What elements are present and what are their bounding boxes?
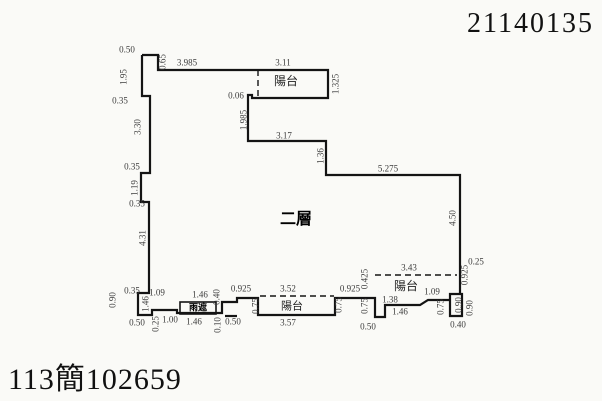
dimension-label: 0.50 [225,318,241,327]
floor-plan-page: 0.503.9853.110.060.353.175.2750.350.350.… [0,0,602,401]
dimension-label-vertical: 1.36 [317,148,326,164]
dimension-label-vertical: 1.325 [332,74,341,94]
wall-outline [142,55,462,316]
dimension-label-vertical: 4.31 [139,230,148,246]
dimension-label-vertical: 0.75 [335,297,344,313]
dimension-label: 1.38 [382,296,398,305]
dimension-label: 1.46 [392,308,408,317]
dimension-label-vertical: 1.46 [142,296,151,312]
dimension-label-vertical: 0.75 [361,298,370,314]
dimension-label-vertical: 1.95 [120,69,129,85]
document-number: 21140135 [467,8,594,40]
dimension-label: 3.985 [177,59,197,68]
dimension-label: 1.00 [162,316,178,325]
dimension-label: 1.46 [186,318,202,327]
dimension-label: 3.17 [276,132,292,141]
dimension-label: 1.09 [424,288,440,297]
dimension-label: 1.09 [149,289,165,298]
dimension-label: 1.46 [192,291,208,300]
canopy-label: 雨遮 [189,304,207,313]
dimension-label-vertical: 1.19 [131,180,140,196]
balcony-label: 陽台 [394,280,418,292]
dimension-label-vertical: 0.75 [252,298,261,314]
dimension-label: 0.40 [450,321,466,330]
dimension-label-vertical: 0.925 [461,265,470,285]
floor-plan-drawing [0,0,602,401]
dimension-label: 0.25 [468,258,484,267]
dimension-label-vertical: 4.50 [449,210,458,226]
dimension-label-vertical: 0.90 [455,297,464,313]
dimension-label: 3.57 [280,319,296,328]
dimension-label-vertical: 0.10 [214,317,223,333]
wall-outline [138,55,450,317]
dimension-label: 3.52 [280,285,296,294]
balcony-label: 陽台 [274,75,298,87]
balcony-label: 陽台 [281,302,303,313]
dimension-label-vertical: 0.40 [213,289,222,305]
dimension-label: 0.35 [112,97,128,106]
dimension-label-vertical: 0.90 [109,292,118,308]
dimension-label-vertical: 0.75 [437,299,446,315]
dimension-label-vertical: 0.65 [159,54,168,70]
dimension-label: 0.06 [228,92,244,101]
dimension-label: 0.50 [360,323,376,332]
dimension-label: 0.50 [119,46,135,55]
dimension-label-vertical: 0.90 [466,300,475,316]
dimension-label-vertical: 0.425 [361,269,370,289]
dimension-label: 0.35 [124,163,140,172]
dimension-label: 0.925 [231,285,251,294]
dimension-label: 5.275 [378,165,398,174]
dimension-label: 3.43 [401,264,417,273]
dimension-label: 0.50 [129,319,145,328]
dimension-label: 0.925 [340,285,360,294]
dimension-label-vertical: 3.30 [134,119,143,135]
dimension-label: 0.35 [129,200,145,209]
dimension-label: 0.35 [124,287,140,296]
dimension-label-vertical: 0.25 [152,316,161,332]
case-number: 113簡102659 [8,354,182,398]
dimension-label-vertical: 1.985 [240,110,249,130]
dimension-label: 3.11 [275,59,290,68]
floor-label: 二層 [280,212,312,228]
